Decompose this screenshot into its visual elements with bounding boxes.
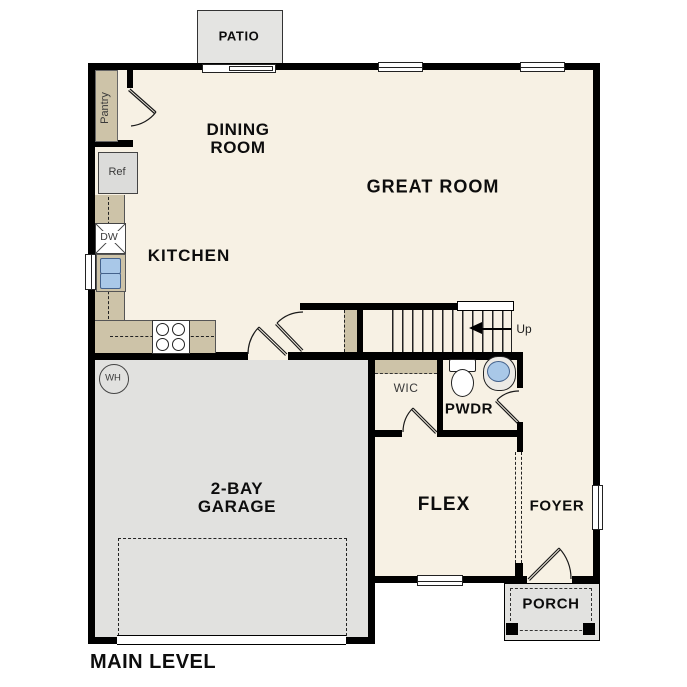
wic-shelf bbox=[375, 360, 437, 374]
cased-opening-line bbox=[521, 452, 522, 563]
stairs-landing bbox=[457, 301, 514, 311]
garage-entry-opening bbox=[248, 352, 288, 360]
sliding-panel bbox=[229, 66, 273, 71]
room-label-porch: PORCH bbox=[522, 596, 579, 613]
room-label-great-room: GREAT ROOM bbox=[367, 177, 500, 198]
garage-door bbox=[117, 635, 346, 645]
label-water-heater: WH bbox=[105, 373, 121, 384]
stairs-arrow-line bbox=[477, 328, 511, 330]
porch-post-left bbox=[506, 623, 518, 635]
wall bbox=[368, 430, 523, 437]
room-label-garage-2: GARAGE bbox=[198, 497, 276, 517]
window bbox=[520, 62, 565, 72]
room-label-garage-1: 2-BAY bbox=[211, 479, 263, 499]
powder-sink-icon bbox=[483, 356, 516, 391]
room-label-patio: PATIO bbox=[219, 29, 260, 44]
wall bbox=[127, 70, 133, 88]
toilet-bowl-icon bbox=[451, 369, 474, 397]
wall bbox=[368, 352, 375, 644]
label-stairs-up: Up bbox=[516, 322, 531, 336]
burner bbox=[172, 338, 185, 351]
floor-plan: PATIO DINING ROOM GREAT ROOM KITCHEN 2-B… bbox=[0, 0, 687, 687]
stairs-arrow-head bbox=[469, 322, 482, 334]
label-pantry: Pantry bbox=[99, 92, 111, 124]
room-label-dining-1: DINING bbox=[206, 120, 269, 140]
porch-post-right bbox=[583, 623, 595, 635]
patio-sliding-door bbox=[202, 64, 276, 73]
room-label-kitchen: KITCHEN bbox=[148, 246, 231, 266]
kitchen-sink-icon bbox=[96, 254, 126, 292]
room-label-foyer: FOYER bbox=[530, 498, 585, 515]
stairs-treads bbox=[392, 310, 512, 352]
label-dishwasher: DW bbox=[99, 231, 119, 243]
stove-icon bbox=[152, 320, 190, 354]
window bbox=[417, 575, 463, 586]
room-label-wic: WIC bbox=[394, 381, 419, 395]
understair-closet bbox=[344, 310, 357, 352]
sink-basin bbox=[100, 273, 121, 289]
label-refrigerator: Ref bbox=[108, 166, 125, 178]
garage-door-dashed bbox=[118, 538, 347, 636]
wic-door-opening bbox=[402, 430, 437, 437]
wall bbox=[437, 358, 443, 437]
window bbox=[85, 254, 96, 290]
wall bbox=[517, 355, 523, 388]
burner bbox=[156, 323, 169, 336]
cased-opening-line bbox=[515, 452, 516, 563]
window bbox=[378, 62, 423, 72]
room-label-powder: PWDR bbox=[445, 401, 493, 418]
burner bbox=[156, 338, 169, 351]
room-label-flex: FLEX bbox=[418, 494, 471, 516]
wall bbox=[356, 303, 363, 360]
wall bbox=[517, 422, 523, 452]
wall bbox=[515, 563, 523, 583]
powder-sink-bowl bbox=[487, 361, 510, 382]
room-label-dining-2: ROOM bbox=[210, 138, 265, 158]
plan-title: MAIN LEVEL bbox=[90, 651, 216, 674]
window bbox=[592, 485, 603, 530]
burner bbox=[172, 323, 185, 336]
front-door-opening bbox=[527, 576, 572, 583]
sink-basin bbox=[100, 258, 121, 274]
wall bbox=[300, 303, 458, 310]
